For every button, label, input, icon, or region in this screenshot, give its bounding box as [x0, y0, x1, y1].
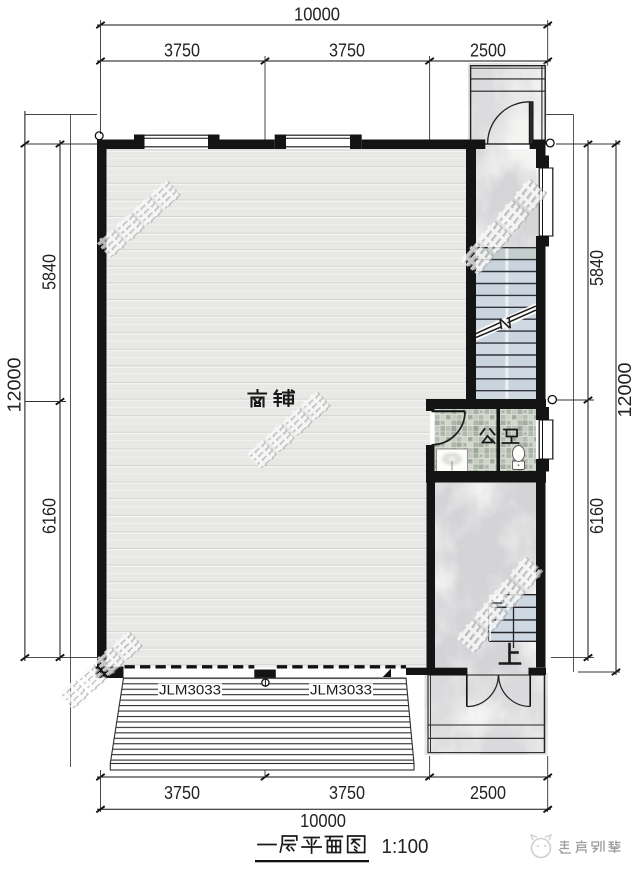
- svg-text:12000: 12000: [5, 358, 25, 413]
- svg-text:6160: 6160: [587, 498, 607, 534]
- svg-text:1:100: 1:100: [382, 836, 429, 858]
- svg-text:3750: 3750: [164, 41, 200, 61]
- svg-text:3750: 3750: [329, 41, 365, 61]
- svg-text:6160: 6160: [40, 498, 60, 534]
- svg-text:JLM3033: JLM3033: [310, 683, 372, 698]
- svg-text:JLM3033: JLM3033: [159, 683, 221, 698]
- svg-text:10000: 10000: [300, 811, 346, 831]
- svg-text:3750: 3750: [329, 783, 365, 803]
- svg-text:2500: 2500: [470, 783, 506, 803]
- svg-text:5840: 5840: [587, 250, 607, 286]
- svg-text:2500: 2500: [470, 41, 506, 61]
- svg-text:10000: 10000: [294, 5, 340, 25]
- svg-text:3750: 3750: [164, 783, 200, 803]
- svg-text:5840: 5840: [40, 254, 60, 290]
- svg-text:12000: 12000: [615, 363, 635, 418]
